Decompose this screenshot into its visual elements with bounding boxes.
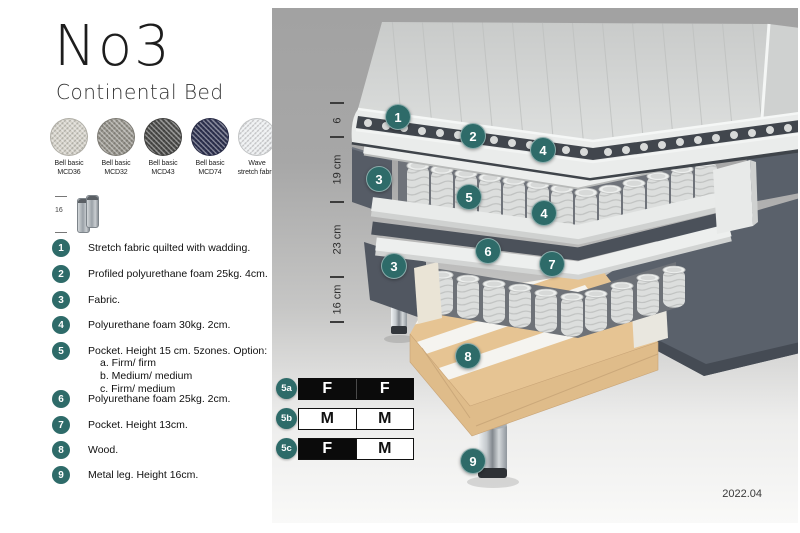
legend-text: Fabric. (88, 291, 120, 306)
firmness-cell: M (356, 409, 414, 429)
firmness-cell: F (356, 379, 414, 399)
legend-text: Pocket. Height 13cm. (88, 416, 188, 431)
firmness-badge-5a: 5a (276, 378, 297, 399)
fabric-swatch: Bell basic MCD74 (188, 118, 232, 177)
topper-mattress (352, 18, 798, 178)
fabric-swatch-circle (144, 118, 182, 156)
version-stamp: 2022.04 (672, 488, 762, 500)
swatch-label-line1: Bell basic (196, 160, 225, 167)
dimension-label-middle: 19 cm (332, 147, 345, 193)
legend-item-4: 4 Polyurethane foam 30kg. 2cm. (52, 316, 230, 334)
firmness-badge-5b: 5b (276, 408, 297, 429)
legend-text: Wood. (88, 441, 118, 456)
diagram-callout-4b: 4 (531, 200, 557, 226)
firmness-cell: F (299, 379, 356, 399)
swatch-label-line1: Bell basic (102, 160, 131, 167)
legend-number-badge: 7 (52, 416, 70, 434)
legend-number-badge: 6 (52, 390, 70, 408)
swatch-label-line1: Bell basic (149, 160, 178, 167)
legend-number-badge: 5 (52, 342, 70, 360)
diagram-callout-3b: 3 (381, 253, 407, 279)
thumb-tick (55, 232, 67, 233)
diagram-callout-3a: 3 (366, 166, 392, 192)
dimension-label-leg: 16 cm (332, 277, 345, 323)
fabric-swatch-circle (238, 118, 276, 156)
firmness-cell: F (299, 439, 356, 459)
legend-text: Polyurethane foam 25kg. 2cm. (88, 390, 230, 405)
swatch-label-line1: Wave (248, 160, 265, 167)
fabric-swatches: Bell basic MCD36 Bell basic MCD32 Bell b… (47, 118, 279, 177)
legend-option: b. Medium/ medium (100, 370, 192, 383)
diagram-callout-7: 7 (539, 251, 565, 277)
legend-text: Metal leg. Height 16cm. (88, 466, 198, 481)
legend-number-badge: 1 (52, 239, 70, 257)
product-render-panel: 6 19 cm 23 cm 16 cm 1 2 4 3 5 4 6 3 7 8 … (272, 8, 798, 523)
thumb-tick (55, 196, 67, 197)
swatch-label-line2: MCD43 (151, 169, 174, 176)
legend-item-8: 8 Wood. (52, 441, 118, 459)
firmness-cell: M (299, 409, 356, 429)
firmness-bar-5a: F F (298, 378, 414, 400)
legend-number-badge: 3 (52, 291, 70, 309)
legend-item-3: 3 Fabric. (52, 291, 120, 309)
leg-height-value: 16 (55, 207, 63, 214)
legend-item-9: 9 Metal leg. Height 16cm. (52, 466, 198, 484)
legend-text: Polyurethane foam 30kg. 2cm. (88, 316, 230, 331)
swatch-label-line1: Bell basic (55, 160, 84, 167)
diagram-callout-6: 6 (475, 238, 501, 264)
middle-end-cap (713, 160, 758, 234)
legend-item-6: 6 Polyurethane foam 25kg. 2cm. (52, 390, 230, 408)
legend-number-badge: 4 (52, 316, 70, 334)
fabric-swatch-circle (191, 118, 229, 156)
legend-item-2: 2 Profiled polyurethane foam 25kg. 4cm. (52, 265, 268, 283)
legend-item-1: 1 Stretch fabric quilted with wadding. (52, 239, 250, 257)
swatch-label-line2: stretch fabric (238, 169, 277, 176)
legend-option: a. Firm/ firm (100, 357, 192, 370)
lower-box-front-post (414, 262, 442, 324)
legend-item-7: 7 Pocket. Height 13cm. (52, 416, 188, 434)
diagram-callout-1: 1 (385, 104, 411, 130)
leg-height-thumbnail: 16 (55, 192, 125, 242)
legend-number-badge: 8 (52, 441, 70, 459)
dimension-label-lower: 23 cm (332, 217, 345, 263)
swatch-label-line2: MCD32 (104, 169, 127, 176)
legend-number-badge: 2 (52, 265, 70, 283)
legend-text: Profiled polyurethane foam 25kg. 4cm. (88, 265, 268, 280)
diagram-callout-8: 8 (455, 343, 481, 369)
leg-cylinder-icon (86, 195, 99, 228)
legend-number-badge: 9 (52, 466, 70, 484)
firmness-bar-5b: M M (298, 408, 414, 430)
fabric-swatch: Bell basic MCD36 (47, 118, 91, 177)
diagram-callout-9: 9 (460, 448, 486, 474)
fabric-swatch-circle (50, 118, 88, 156)
diagram-callout-4a: 4 (530, 137, 556, 163)
ruler-tick (330, 201, 344, 203)
product-infographic: No3 Continental Bed Bell basic MCD36 Bel… (0, 0, 800, 533)
fabric-swatch-circle (97, 118, 135, 156)
diagram-callout-5: 5 (456, 184, 482, 210)
dimension-label-topper: 6 (332, 98, 345, 144)
swatch-label-line2: MCD36 (57, 169, 80, 176)
fabric-swatch: Bell basic MCD43 (141, 118, 185, 177)
legend-text: Stretch fabric quilted with wadding. (88, 239, 250, 254)
swatch-label-line2: MCD74 (198, 169, 221, 176)
legend-text: Pocket. Height 15 cm. 5zones. Option: (88, 342, 267, 357)
page-subtitle: Continental Bed (56, 80, 224, 104)
firmness-badge-5c: 5c (276, 438, 297, 459)
firmness-bar-5c: F M (298, 438, 414, 460)
firmness-cell: M (356, 439, 414, 459)
page-title: No3 (54, 14, 172, 79)
fabric-swatch: Bell basic MCD32 (94, 118, 138, 177)
diagram-callout-2: 2 (460, 123, 486, 149)
